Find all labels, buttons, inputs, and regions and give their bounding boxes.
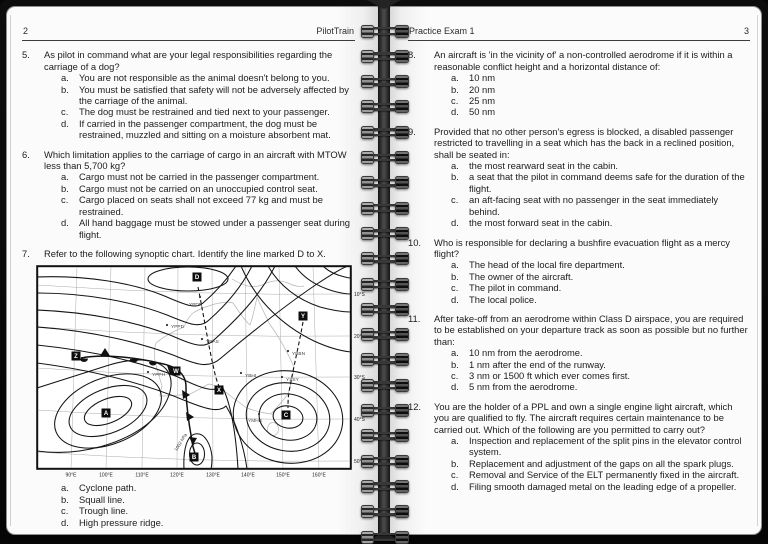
option-letter: c. xyxy=(61,505,79,516)
option-text: 3 nm or 1500 ft which ever comes first. xyxy=(469,370,750,381)
lon-label: 90°E xyxy=(66,473,78,479)
option-letter: c. xyxy=(61,106,79,117)
station-label-yppd: YPPD xyxy=(171,324,185,330)
binding-ring xyxy=(360,151,409,165)
lon-label: 120°E xyxy=(170,473,184,479)
answer-option: a.Inspection and replacement of the spli… xyxy=(451,435,750,458)
question-number: 5. xyxy=(22,49,44,140)
option-text: The pilot in command. xyxy=(469,282,750,293)
lon-label: 110°E xyxy=(135,473,149,479)
option-text: an aft-facing seat with no passenger in … xyxy=(469,194,750,217)
option-text: You are not responsible as the animal do… xyxy=(79,72,355,83)
option-letter: c. xyxy=(451,282,469,293)
marker-label-y: Y xyxy=(301,315,305,321)
option-letter: b. xyxy=(61,84,79,107)
question: 7.Refer to the following synoptic chart.… xyxy=(22,248,355,528)
option-letter: d. xyxy=(451,106,469,117)
question: 9.Provided that no other person's egress… xyxy=(408,126,750,229)
answer-option: b.Squall line. xyxy=(61,494,355,505)
question-text: You are the holder of a PPL and own a si… xyxy=(434,401,750,435)
option-text: 5 nm from the aerodrome. xyxy=(469,381,750,392)
answer-option: a.Cargo must not be carried in the passe… xyxy=(61,171,355,182)
question-body: Provided that no other person's egress i… xyxy=(434,126,750,229)
binding-ring xyxy=(360,328,409,342)
lon-label: 150°E xyxy=(276,473,290,479)
binding-ring xyxy=(360,505,409,519)
answer-option: b.You must be satisfied that safety will… xyxy=(61,84,355,107)
binding-ring xyxy=(360,530,409,544)
answer-option: a.the most rearward seat in the cabin. xyxy=(451,160,750,171)
answer-option: b.20 nm xyxy=(451,84,750,95)
option-letter: b. xyxy=(61,494,79,505)
option-text: High pressure ridge. xyxy=(79,517,355,528)
marker-label-a: A xyxy=(104,412,109,418)
left-questions: 5.As pilot in command what are your lega… xyxy=(22,49,355,528)
lon-label: 100°E xyxy=(99,473,113,479)
option-letter: b. xyxy=(451,84,469,95)
answer-option: c.Trough line. xyxy=(61,505,355,516)
left-page: 2 PilotTrain 5.As pilot in command what … xyxy=(6,6,379,535)
option-letter: a. xyxy=(61,72,79,83)
question-text: As pilot in command what are your legal … xyxy=(44,49,355,72)
lon-label: 140°E xyxy=(241,473,255,479)
option-text: 20 nm xyxy=(469,84,750,95)
option-letter: a. xyxy=(451,435,469,458)
option-text: Cyclone path. xyxy=(79,482,355,493)
option-text: You must be satisfied that safety will n… xyxy=(79,84,355,107)
option-letter: b. xyxy=(451,171,469,194)
question: 11.After take-off from an aerodrome with… xyxy=(408,313,750,393)
option-letter: d. xyxy=(61,517,79,528)
station-label-ymhb: YMHB xyxy=(248,418,262,424)
longitude-labels: 90°E 100°E 110°E 120°E 130°E 140°E 150°E… xyxy=(66,473,327,479)
question: 6.Which limitation applies to the carria… xyxy=(22,149,355,240)
lat-label: 10°S xyxy=(354,292,366,298)
station-label-ypdn: YPDN xyxy=(189,302,203,308)
option-text: Cargo must not be carried on an unoccupi… xyxy=(79,183,355,194)
binding-ring xyxy=(360,226,409,240)
answer-option: d.All hand baggage must be stowed under … xyxy=(61,217,355,240)
answer-option: d.Filing smooth damaged metal on the lea… xyxy=(451,481,750,492)
option-letter: d. xyxy=(61,217,79,240)
question-body: You are the holder of a PPL and own a si… xyxy=(434,401,750,492)
answer-option: d.the most forward seat in the cabin. xyxy=(451,217,750,228)
question-number: 6. xyxy=(22,149,44,240)
binding-ring xyxy=(360,252,409,266)
answer-option: a.You are not responsible as the animal … xyxy=(61,72,355,83)
option-text: 10 nm xyxy=(469,72,750,83)
binding-ring xyxy=(360,176,409,190)
answer-option: b.Cargo must not be carried on an unoccu… xyxy=(61,183,355,194)
option-letter: d. xyxy=(451,481,469,492)
binding-ring xyxy=(360,125,409,139)
option-text: Inspection and replacement of the split … xyxy=(469,435,750,458)
question-text: An aircraft is 'in the vicinity of' a no… xyxy=(434,49,750,72)
answer-option: d.50 nm xyxy=(451,106,750,117)
left-page-content: 2 PilotTrain 5.As pilot in command what … xyxy=(22,26,355,528)
answer-option: a.Cyclone path. xyxy=(61,482,355,493)
binding-ring xyxy=(360,429,409,443)
option-letter: a. xyxy=(451,259,469,270)
question-number: 12. xyxy=(408,401,434,492)
answer-option: d.5 nm from the aerodrome. xyxy=(451,381,750,392)
binding-ring xyxy=(360,378,409,392)
question: 5.As pilot in command what are your lega… xyxy=(22,49,355,140)
question-body: Who is responsible for declaring a bushf… xyxy=(434,237,750,305)
answer-option: c.The pilot in command. xyxy=(451,282,750,293)
marker-label-d: D xyxy=(195,276,200,282)
option-text: The owner of the aircraft. xyxy=(469,271,750,282)
option-text: 50 nm xyxy=(469,106,750,117)
answer-option: b.a seat that the pilot in command deems… xyxy=(451,171,750,194)
option-letter: a. xyxy=(451,347,469,358)
option-letter: a. xyxy=(451,160,469,171)
left-page-header: 2 PilotTrain xyxy=(22,26,355,41)
option-text: Squall line. xyxy=(79,494,355,505)
option-text: The local police. xyxy=(469,294,750,305)
question-text: Refer to the following synoptic chart. I… xyxy=(44,248,355,259)
option-text: If carried in the passenger compartment,… xyxy=(79,118,355,141)
marker-label-z: Z xyxy=(74,355,78,361)
book-spread: 2 PilotTrain 5.As pilot in command what … xyxy=(0,0,768,541)
option-text: Filing smooth damaged metal on the leadi… xyxy=(469,481,750,492)
option-letter: d. xyxy=(451,217,469,228)
option-letter: a. xyxy=(61,171,79,182)
answer-option: c.The dog must be restrained and tied ne… xyxy=(61,106,355,117)
right-page-header: Practice Exam 1 3 xyxy=(408,26,750,41)
answer-option: c.25 nm xyxy=(451,95,750,106)
binding-ring xyxy=(360,454,409,468)
option-text: a seat that the pilot in command deems s… xyxy=(469,171,750,194)
station-label-ybbn: YBBN xyxy=(292,351,306,357)
lon-label: 160°E xyxy=(312,473,326,479)
option-letter: c. xyxy=(451,370,469,381)
question-number: 8. xyxy=(408,49,434,117)
question-number: 10. xyxy=(408,237,434,305)
option-letter: b. xyxy=(451,271,469,282)
option-text: Removal and Service of the ELT permanent… xyxy=(469,469,750,480)
question-body: As pilot in command what are your legal … xyxy=(44,49,355,140)
binding-ring xyxy=(360,24,409,38)
question-text: Which limitation applies to the carriage… xyxy=(44,149,355,172)
option-text: 25 nm xyxy=(469,95,750,106)
question-text: Who is responsible for declaring a bushf… xyxy=(434,237,750,260)
lon-label: 130°E xyxy=(206,473,220,479)
synoptic-chart-wrap: YPDN YPPD YBAS YBBN YPPH YBHI YSSY YMHB … xyxy=(36,265,371,479)
option-text: Cargo placed on seats shall not exceed 7… xyxy=(79,194,355,217)
option-letter: c. xyxy=(451,95,469,106)
right-page-number: 3 xyxy=(744,26,749,37)
answer-option: b.Replacement and adjustment of the gaps… xyxy=(451,458,750,469)
lat-label: 40°S xyxy=(354,417,366,423)
right-questions: 8.An aircraft is 'in the vicinity of' a … xyxy=(408,49,750,492)
option-text: Cargo must not be carried in the passeng… xyxy=(79,171,355,182)
question-body: Which limitation applies to the carriage… xyxy=(44,149,355,240)
answer-option: a.The head of the local fire department. xyxy=(451,259,750,270)
answer-option: c.3 nm or 1500 ft which ever comes first… xyxy=(451,370,750,381)
answer-option: d.The local police. xyxy=(451,294,750,305)
question-body: An aircraft is 'in the vicinity of' a no… xyxy=(434,49,750,117)
question: 8.An aircraft is 'in the vicinity of' a … xyxy=(408,49,750,117)
answer-option: b.The owner of the aircraft. xyxy=(451,271,750,282)
question: 10.Who is responsible for declaring a bu… xyxy=(408,237,750,305)
option-letter: c. xyxy=(451,194,469,217)
binding-ring xyxy=(360,302,409,316)
answer-option: c.Cargo placed on seats shall not exceed… xyxy=(61,194,355,217)
answer-option: c.Removal and Service of the ELT permane… xyxy=(451,469,750,480)
option-letter: a. xyxy=(61,482,79,493)
answer-option: d.If carried in the passenger compartmen… xyxy=(61,118,355,141)
option-text: the most rearward seat in the cabin. xyxy=(469,160,750,171)
option-letter: d. xyxy=(61,118,79,141)
question-text: After take-off from an aerodrome within … xyxy=(434,313,750,347)
book-title: PilotTrain xyxy=(316,26,354,37)
station-label-ybhi: YBHI xyxy=(245,373,256,379)
question-body: After take-off from an aerodrome within … xyxy=(434,313,750,393)
marker-label-c: C xyxy=(284,414,289,420)
station-label-ybas: YBAS xyxy=(206,339,219,345)
answer-option: c.an aft-facing seat with no passenger i… xyxy=(451,194,750,217)
option-letter: b. xyxy=(61,183,79,194)
option-text: 10 nm from the aerodrome. xyxy=(469,347,750,358)
answer-option: a.10 nm from the aerodrome. xyxy=(451,347,750,358)
station-label-yssy: YSSY xyxy=(286,377,300,383)
option-letter: c. xyxy=(61,194,79,217)
binding-ring xyxy=(360,277,409,291)
exam-title: Practice Exam 1 xyxy=(409,26,475,37)
marker-label-b: B xyxy=(192,456,197,462)
option-text: The dog must be restrained and tied next… xyxy=(79,106,355,117)
right-page: Practice Exam 1 3 8.An aircraft is 'in t… xyxy=(389,6,762,535)
binding-ring xyxy=(360,75,409,89)
option-letter: d. xyxy=(451,381,469,392)
binding-ring xyxy=(360,404,409,418)
question-number: 11. xyxy=(408,313,434,393)
option-letter: d. xyxy=(451,294,469,305)
binding-ring xyxy=(360,479,409,493)
option-text: The head of the local fire department. xyxy=(469,259,750,270)
binding-ring xyxy=(360,100,409,114)
option-text: Replacement and adjustment of the gaps o… xyxy=(469,458,750,469)
answer-option: d.High pressure ridge. xyxy=(61,517,355,528)
marker-label-x: X xyxy=(217,389,221,395)
question-number: 9. xyxy=(408,126,434,229)
option-letter: c. xyxy=(451,469,469,480)
binding-ring xyxy=(360,201,409,215)
left-page-number: 2 xyxy=(23,26,28,37)
option-text: 1 nm after the end of the runway. xyxy=(469,359,750,370)
station-label-ypph: YPPH xyxy=(152,372,166,378)
question: 12.You are the holder of a PPL and own a… xyxy=(408,401,750,492)
marker-label-w: W xyxy=(173,370,179,376)
binding-ring xyxy=(360,353,409,367)
synoptic-chart: YPDN YPPD YBAS YBBN YPPH YBHI YSSY YMHB … xyxy=(36,265,371,479)
question-text: Provided that no other person's egress i… xyxy=(434,126,750,160)
option-letter: b. xyxy=(451,458,469,469)
option-letter: a. xyxy=(451,72,469,83)
answer-option: b.1 nm after the end of the runway. xyxy=(451,359,750,370)
binding-ring xyxy=(360,49,409,63)
option-text: All hand baggage must be stowed under a … xyxy=(79,217,355,240)
question-body: Refer to the following synoptic chart. I… xyxy=(44,248,355,528)
option-text: Trough line. xyxy=(79,505,355,516)
option-letter: b. xyxy=(451,359,469,370)
option-text: the most forward seat in the cabin. xyxy=(469,217,750,228)
right-page-content: Practice Exam 1 3 8.An aircraft is 'in t… xyxy=(408,26,750,492)
answer-option: a.10 nm xyxy=(451,72,750,83)
